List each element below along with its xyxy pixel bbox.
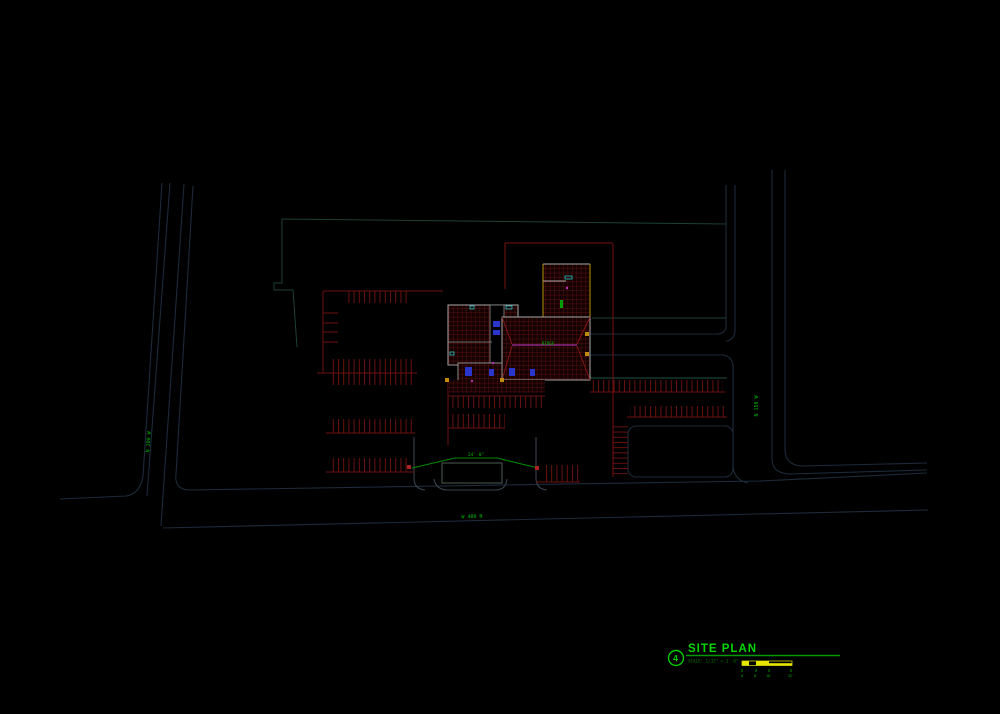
blue-fixture	[509, 368, 515, 376]
parking-row	[542, 465, 580, 482]
east-road-label: N 150 W	[754, 394, 760, 416]
blue-fixture	[493, 321, 500, 327]
parking-row-vertical	[613, 423, 628, 477]
scale-tick-label: 0	[741, 674, 743, 678]
ne-wing-green-marker	[560, 300, 563, 308]
parking-row	[332, 359, 412, 373]
scale-tick-label: 32'	[788, 674, 794, 678]
magenta-dot	[471, 380, 473, 382]
site-plan-drawing: 24'-0" RIDGE N 200 W N 150 W W 400 N 4 S…	[0, 0, 1000, 714]
scale-bar-segment	[742, 661, 749, 666]
parking-row	[448, 396, 545, 408]
blue-fixture	[465, 367, 472, 376]
driveway-dim-label: 24'-0"	[468, 452, 484, 458]
ridge-label: RIDGE	[542, 341, 555, 346]
south-hatch-band	[448, 380, 545, 393]
blue-fixture	[489, 369, 494, 376]
blue-fixture	[493, 330, 500, 335]
yellow-marker	[585, 352, 589, 356]
parking-row	[332, 373, 412, 385]
scale-bar-segment	[769, 663, 792, 665]
yellow-marker	[500, 378, 504, 382]
building-east-block-roof	[502, 317, 590, 380]
parking-row	[630, 406, 725, 417]
parking-row	[448, 414, 505, 428]
yellow-marker	[445, 378, 449, 382]
ne-wing-magenta-dot	[566, 287, 568, 289]
parking-row	[347, 291, 409, 303]
scale-tick-label: 8'	[754, 674, 758, 678]
yellow-marker	[585, 332, 589, 336]
scale-bar-segment	[756, 661, 769, 666]
scale-note: SCALE: 1/32" = 1'-0"	[688, 659, 738, 664]
parking-row	[592, 380, 723, 392]
parking-row	[330, 458, 410, 472]
parking-row	[330, 419, 412, 433]
detail-number: 4	[673, 654, 679, 664]
building-ne-wing-roof	[543, 264, 590, 318]
south-street-label: W 400 N	[461, 514, 482, 521]
gate-end-marker	[535, 466, 539, 470]
scale-tick-label: 16'	[766, 674, 772, 678]
gate-end-marker	[407, 465, 411, 469]
drawing-title: SITE PLAN	[688, 643, 757, 655]
building-sw-block-roof	[458, 363, 502, 382]
blue-fixture	[530, 369, 535, 376]
magenta-dot	[492, 362, 494, 364]
cad-viewport: 24'-0" RIDGE N 200 W N 150 W W 400 N 4 S…	[0, 0, 1000, 714]
